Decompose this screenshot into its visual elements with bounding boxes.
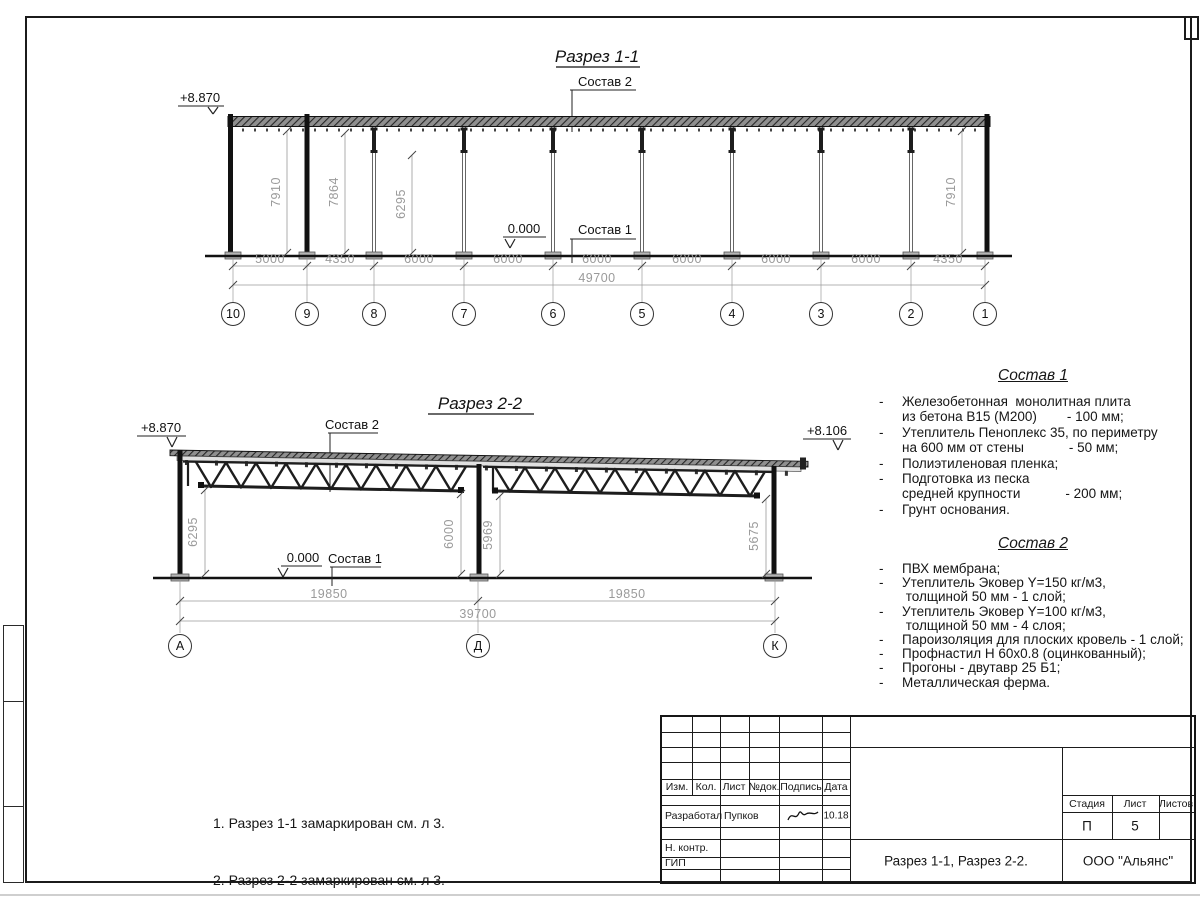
svg-text:Д: Д	[474, 639, 483, 653]
dim-label: 6000	[442, 519, 456, 549]
sostav2-list: Состав 2 -ПВХ мембрана; -Утеплитель Эков…	[872, 535, 1194, 690]
dim-label: 6000	[761, 252, 791, 266]
dim-label: 5000	[255, 252, 285, 266]
dim-label: 6000	[672, 252, 702, 266]
svg-text:Состав 2: Состав 2	[325, 417, 379, 432]
svg-text:К: К	[771, 639, 779, 653]
tb-developer-label: Разработал	[665, 810, 722, 822]
dim-label: 6000	[493, 252, 523, 266]
dim-label: 6295	[186, 517, 200, 547]
svg-text:+8.870: +8.870	[180, 90, 220, 105]
dim-total-label: 49700	[578, 271, 615, 285]
tb-company: ООО "Альянс"	[1083, 854, 1173, 869]
dim-label: 19850	[310, 587, 347, 601]
list-item: -Металлическая ферма.	[872, 676, 1194, 690]
list-item: -Профнастил Н 60х0.8 (оцинкованный);	[872, 647, 1194, 661]
svg-text:0.000: 0.000	[287, 550, 320, 565]
dim-label: 6000	[404, 252, 434, 266]
dim-label: 6295	[394, 189, 408, 219]
list-item: -Полиэтиленовая пленка;	[872, 456, 1194, 471]
note-line: 1. Разрез 1-1 замаркирован см. л 3.	[213, 814, 445, 833]
tb-sheet-label: Лист	[1124, 798, 1147, 810]
svg-text:+8.106: +8.106	[807, 423, 847, 438]
svg-text:Состав 1: Состав 1	[328, 551, 382, 566]
axis-bubbles-s11: 10 9 8 7 6 5 4 3 2 1	[222, 303, 997, 326]
svg-text:6: 6	[550, 307, 557, 321]
section-1-1-drawing: Разрез 1-1 Состав 2 +8.870	[150, 35, 1050, 335]
list-item: из бетона В15 (М200) - 100 мм;	[872, 409, 1194, 424]
corner-format-box	[1184, 16, 1199, 40]
left-stamp-cell-2	[3, 701, 24, 808]
elevation-mark-right-s22: +8.106	[803, 423, 851, 450]
svg-text:4: 4	[729, 307, 736, 321]
list-item: -ПВХ мембрана;	[872, 562, 1194, 576]
tb-col-kol: Кол.	[696, 781, 717, 793]
section-2-2-title: Разрез 2-2	[438, 395, 523, 413]
list-item: толщиной 50 мм - 1 слой;	[872, 590, 1194, 604]
dim-total-label: 39700	[459, 607, 496, 621]
list-item: на 600 мм от стены - 50 мм;	[872, 440, 1194, 455]
list-item: -Подготовка из песка	[872, 471, 1194, 486]
svg-text:2: 2	[908, 307, 915, 321]
tb-gip-label: ГИП	[665, 857, 686, 869]
tb-col-ndok: №док.	[749, 781, 780, 793]
tb-col-data: Дата	[824, 781, 847, 793]
axis-bubbles-s22: А Д К	[169, 635, 787, 658]
paper-bottom-edge	[0, 894, 1200, 896]
svg-text:10: 10	[226, 307, 240, 321]
svg-text:9: 9	[304, 307, 311, 321]
list-item: -Утеплитель Пеноплекс 35, по периметру	[872, 425, 1194, 440]
notes: 1. Разрез 1-1 замаркирован см. л 3. 2. Р…	[213, 776, 445, 900]
dim-label: 7910	[269, 177, 283, 207]
svg-text:А: А	[176, 639, 185, 653]
truss-right-s22	[483, 467, 772, 499]
dim-label: 6000	[582, 252, 612, 266]
tb-developer-date: 10.18	[823, 811, 848, 822]
dim-label: 6000	[851, 252, 881, 266]
dim-label: 4350	[325, 252, 355, 266]
list-item: -Утеплитель Эковер Y=100 кг/м3,	[872, 605, 1194, 619]
left-stamp-cell-1	[3, 625, 24, 703]
tb-stage-label: Стадия	[1069, 798, 1105, 810]
dim-label: 5969	[481, 520, 495, 550]
drawing-sheet: Разрез 1-1 Состав 2 +8.870	[0, 0, 1200, 900]
sostav2-title: Состав 2	[872, 535, 1194, 553]
signature	[786, 808, 820, 824]
svg-text:3: 3	[818, 307, 825, 321]
title-block: Изм. Кол. Лист №док. Подпись Дата Разраб…	[660, 715, 1196, 884]
list-item: средней крупности - 200 мм;	[872, 486, 1194, 501]
list-item: -Прогоны - двутавр 25 Б1;	[872, 661, 1194, 675]
left-stamp-cell-3	[3, 806, 24, 883]
svg-text:0.000: 0.000	[508, 221, 541, 236]
tb-col-list: Лист	[723, 781, 746, 793]
svg-text:Состав 1: Состав 1	[578, 222, 632, 237]
tb-sheet-value: 5	[1131, 819, 1139, 834]
svg-text:1: 1	[982, 307, 989, 321]
leader-sostav1-s22: Состав 1	[328, 551, 382, 586]
dim-label: 5675	[747, 521, 761, 551]
sostav1-list: Состав 1 -Железобетонная монолитная плит…	[872, 367, 1194, 517]
elevation-mark-left-s22: +8.870	[137, 420, 186, 447]
note-line: 2. Разрез 2-2 замаркирован см. л 3.	[213, 871, 445, 890]
dim-label: 19850	[608, 587, 645, 601]
elevation-zero-s11: 0.000	[503, 221, 546, 248]
elevation-mark-top-s11: +8.870	[178, 90, 224, 114]
svg-text:7: 7	[461, 307, 468, 321]
sostav1-title: Состав 1	[872, 367, 1194, 385]
list-item: -Пароизоляция для плоских кровель - 1 сл…	[872, 633, 1194, 647]
tb-sheets-label: Листов	[1159, 798, 1193, 810]
dim-label: 7864	[327, 177, 341, 207]
tb-ncontr-label: Н. контр.	[665, 842, 708, 854]
list-item: толщиной 50 мм - 4 слоя;	[872, 619, 1194, 633]
vertical-dims-s11	[283, 127, 966, 257]
roof-slab-s11	[228, 117, 990, 131]
svg-text:8: 8	[371, 307, 378, 321]
svg-text:Состав 2: Состав 2	[578, 74, 632, 89]
tb-developer-name: Пупков	[724, 810, 759, 822]
tb-col-podpis: Подпись	[780, 781, 822, 793]
list-item: -Грунт основания.	[872, 502, 1194, 517]
tb-col-izm: Изм.	[666, 781, 689, 793]
svg-text:5: 5	[639, 307, 646, 321]
dim-label: 4350	[933, 252, 963, 266]
section-1-1-title: Разрез 1-1	[555, 47, 639, 66]
dim-label: 7910	[944, 177, 958, 207]
tb-stage-value: П	[1082, 819, 1092, 834]
list-item: -Утеплитель Эковер Y=150 кг/м3,	[872, 576, 1194, 590]
svg-text:+8.870: +8.870	[141, 420, 181, 435]
tb-doc-title: Разрез 1-1, Разрез 2-2.	[884, 854, 1028, 869]
list-item: -Железобетонная монолитная плита	[872, 394, 1194, 409]
elevation-zero-s22: 0.000	[278, 550, 322, 577]
section-2-2-drawing: Разрез 2-2 +8.870 +8.106 Состав 2	[120, 395, 880, 665]
